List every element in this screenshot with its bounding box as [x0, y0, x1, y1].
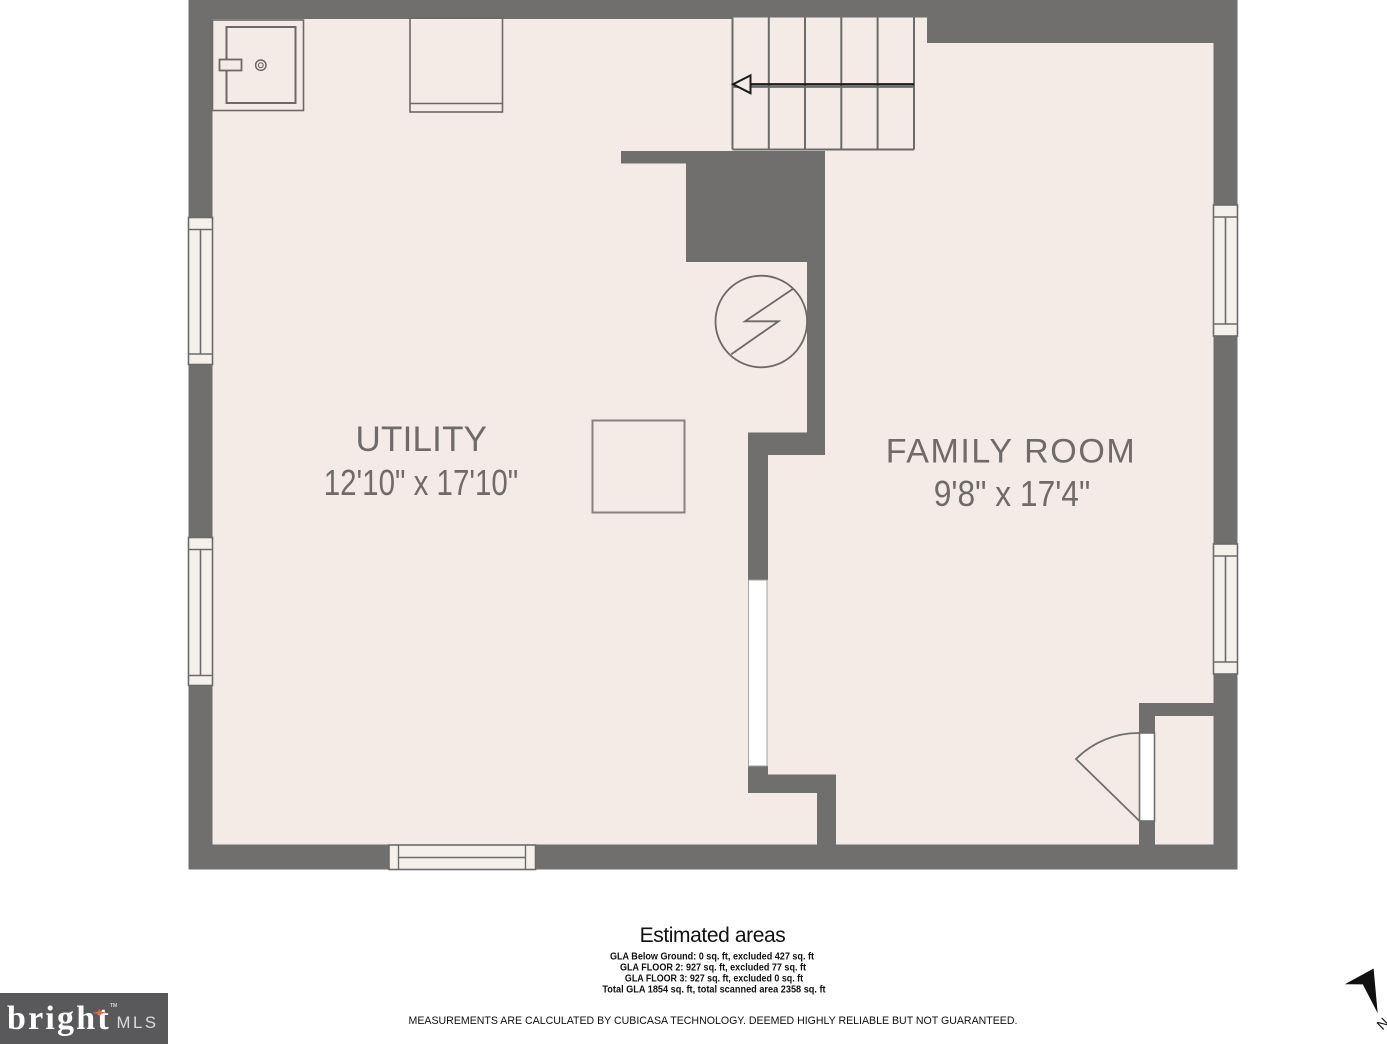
- svg-text:N: N: [1373, 1014, 1387, 1032]
